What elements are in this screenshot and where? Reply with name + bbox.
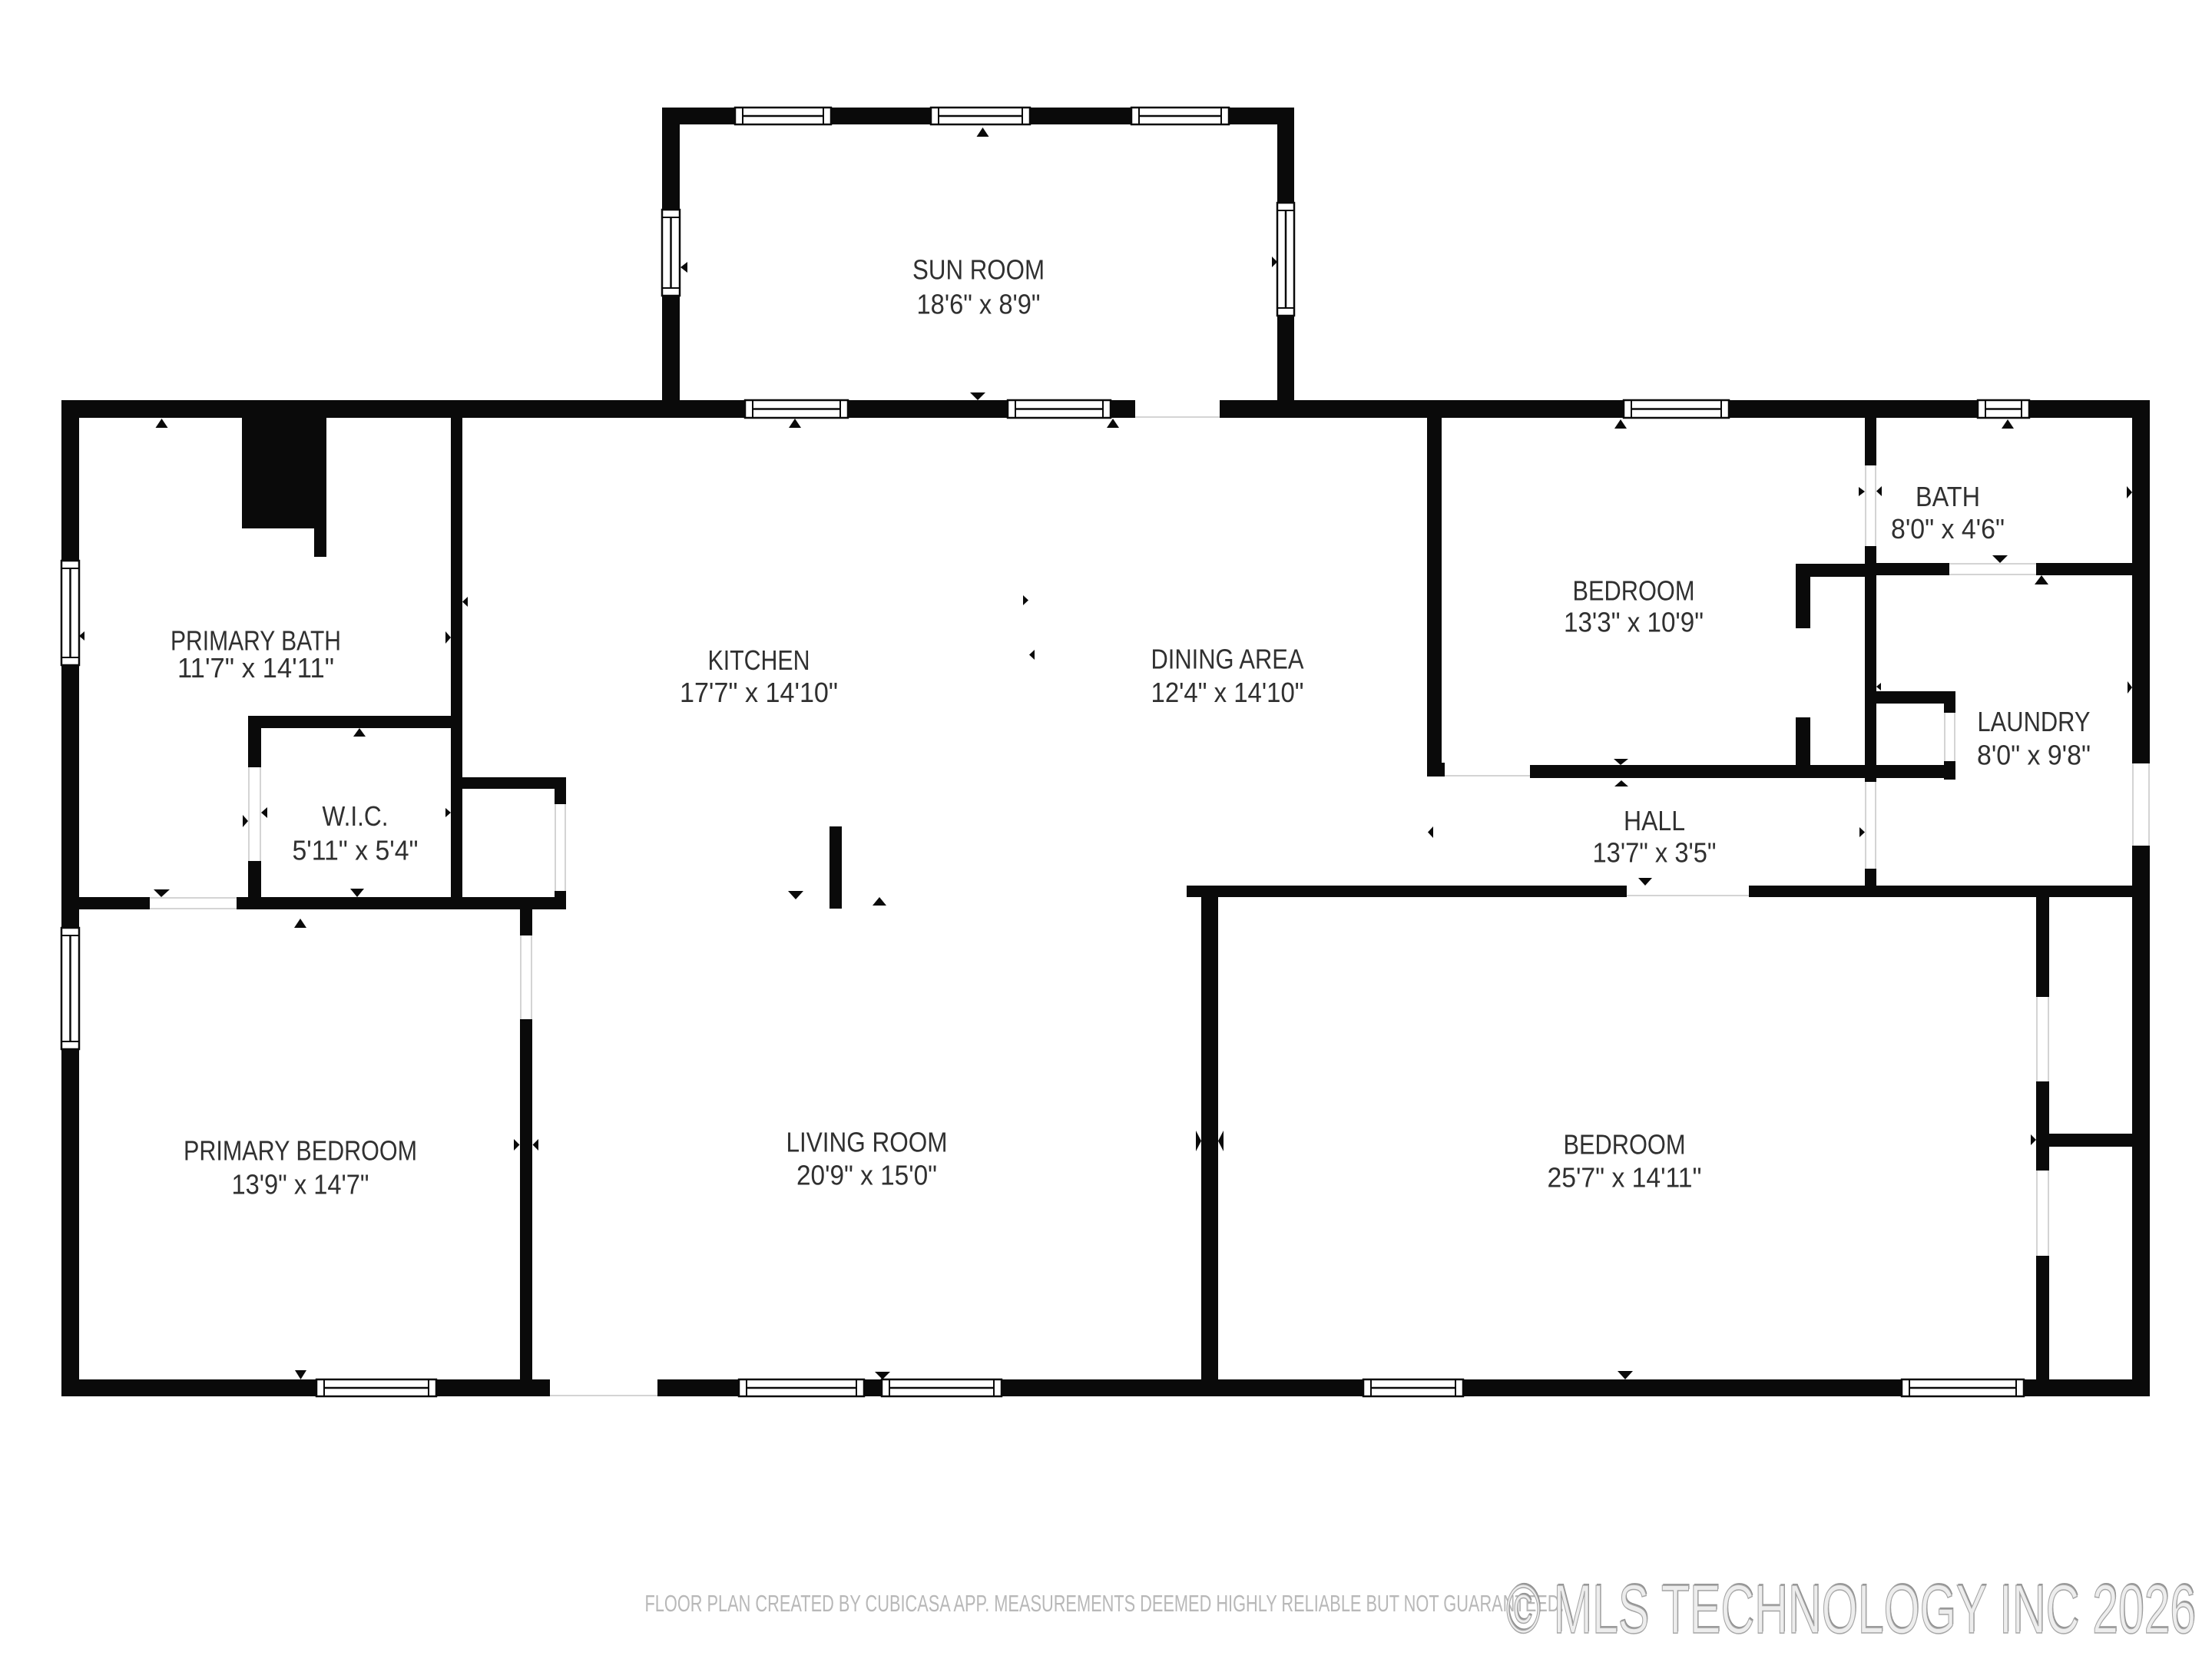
- svg-text:W.I.C.: W.I.C.: [323, 800, 389, 832]
- svg-text:KITCHEN: KITCHEN: [708, 644, 810, 676]
- svg-text:BATH: BATH: [1916, 481, 1980, 512]
- svg-text:17'7" x 14'10": 17'7" x 14'10": [680, 677, 838, 708]
- svg-text:13'7" x 3'5": 13'7" x 3'5": [1593, 837, 1717, 869]
- svg-text:SUN ROOM: SUN ROOM: [912, 254, 1045, 286]
- svg-text:LAUNDRY: LAUNDRY: [1978, 706, 2091, 737]
- svg-text:8'0" x 9'8": 8'0" x 9'8": [1977, 740, 2091, 771]
- svg-text:DINING AREA: DINING AREA: [1151, 644, 1304, 675]
- svg-text:© MLS TECHNOLOGY INC 2026: © MLS TECHNOLOGY INC 2026: [1506, 1571, 2196, 1648]
- svg-text:LIVING ROOM: LIVING ROOM: [786, 1127, 948, 1158]
- svg-text:13'3" x 10'9": 13'3" x 10'9": [1564, 607, 1704, 638]
- svg-text:BEDROOM: BEDROOM: [1564, 1128, 1686, 1160]
- svg-text:12'4" x 14'10": 12'4" x 14'10": [1151, 677, 1304, 708]
- svg-text:13'9" x 14'7": 13'9" x 14'7": [232, 1169, 369, 1200]
- svg-text:HALL: HALL: [1624, 805, 1685, 836]
- svg-text:18'6" x 8'9": 18'6" x 8'9": [917, 288, 1041, 320]
- svg-text:8'0" x 4'6": 8'0" x 4'6": [1891, 513, 2005, 545]
- svg-text:11'7" x 14'11": 11'7" x 14'11": [177, 652, 334, 684]
- svg-text:20'9" x 15'0": 20'9" x 15'0": [796, 1160, 937, 1191]
- svg-text:FLOOR PLAN CREATED BY CUBICASA: FLOOR PLAN CREATED BY CUBICASA APP. MEAS…: [645, 1590, 1565, 1617]
- svg-text:BEDROOM: BEDROOM: [1573, 575, 1695, 606]
- svg-text:5'11" x 5'4": 5'11" x 5'4": [293, 835, 419, 866]
- svg-text:25'7" x 14'11": 25'7" x 14'11": [1548, 1161, 1702, 1193]
- svg-text:PRIMARY BEDROOM: PRIMARY BEDROOM: [184, 1134, 417, 1166]
